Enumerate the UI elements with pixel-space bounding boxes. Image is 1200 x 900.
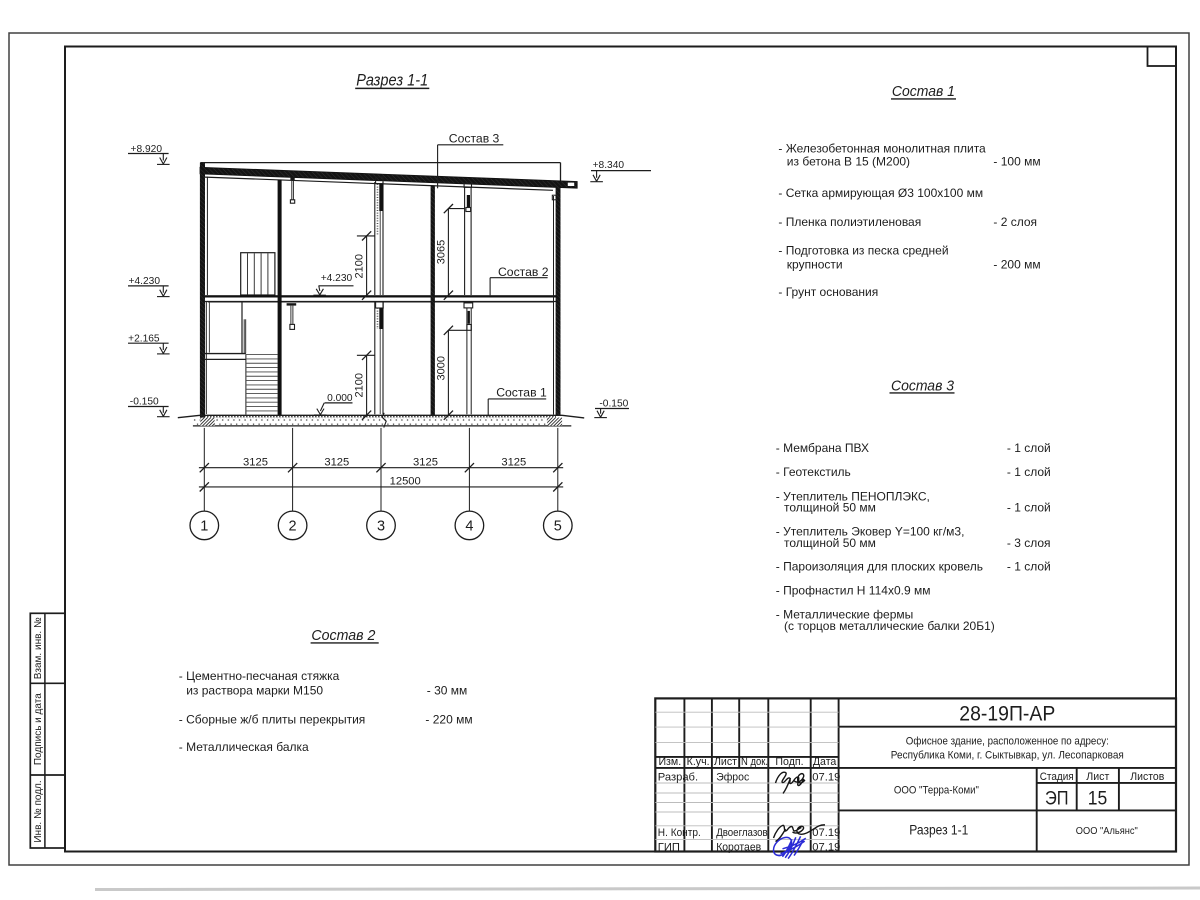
svg-text:+8.340: +8.340 [593,160,625,171]
svg-text:из раствора марки М150: из раствора марки М150 [186,684,323,698]
svg-text:N док.: N док. [741,756,768,768]
svg-text:3125: 3125 [324,456,349,468]
svg-text:- 100 мм: - 100 мм [993,154,1040,168]
svg-text:Состав 1: Состав 1 [892,83,955,100]
svg-text:ООО "Терра-Коми": ООО "Терра-Коми" [894,785,979,797]
svg-text:Лист: Лист [1086,771,1109,783]
svg-text:толщиной 50 мм: толщиной 50 мм [784,501,876,515]
svg-text:2100: 2100 [354,373,366,397]
svg-text:Изм.: Изм. [658,756,681,768]
svg-text:- Цементно-песчаная стяжка: - Цементно-песчаная стяжка [179,669,340,683]
svg-text:- 200 мм: - 200 мм [993,257,1040,271]
svg-text:07.19: 07.19 [812,827,840,839]
svg-text:ООО "Альянс": ООО "Альянс" [1076,825,1138,837]
svg-text:- Пароизоляция для плоских кро: - Пароизоляция для плоских кровель [776,559,983,573]
svg-text:Офисное здание, расположенное: Офисное здание, расположенное по адресу: [906,735,1109,747]
svg-text:Двоеглазов: Двоеглазов [716,827,768,839]
svg-text:- Сборные ж/б плиты перекрытия: - Сборные ж/б плиты перекрытия [179,712,365,726]
svg-text:15: 15 [1088,788,1108,809]
svg-text:07.19: 07.19 [812,772,840,784]
svg-text:Разрез 1-1: Разрез 1-1 [909,823,968,839]
svg-text:Лист: Лист [714,756,737,768]
svg-text:Стадия: Стадия [1040,771,1074,783]
svg-text:(с торцов металлические балки: (с торцов металлические балки 20Б1) [784,619,995,633]
svg-text:- Подготовка из песка средней: - Подготовка из песка средней [778,244,948,258]
svg-text:- 3 слоя: - 3 слоя [1007,536,1051,550]
svg-text:- 1 слой: - 1 слой [1007,465,1051,479]
svg-text:4: 4 [465,519,473,535]
svg-text:Состав 3: Состав 3 [891,377,955,394]
svg-text:0.000: 0.000 [327,393,353,404]
svg-text:- Сетка армирующая Ø3 100х100: - Сетка армирующая Ø3 100х100 мм [778,186,983,200]
svg-text:- 30 мм: - 30 мм [427,684,468,698]
svg-text:- 1 слой: - 1 слой [1007,559,1051,573]
svg-text:Подпись и дата: Подпись и дата [33,693,44,765]
svg-text:Инв. № подл.: Инв. № подл. [33,780,44,842]
svg-text:Разрез 1-1: Разрез 1-1 [356,70,428,89]
svg-text:Коротаев: Коротаев [716,841,761,853]
svg-text:Состав 3: Состав 3 [449,132,500,146]
svg-text:из бетона В 15 (М200): из бетона В 15 (М200) [787,154,910,168]
svg-text:3125: 3125 [501,456,526,468]
svg-text:2100: 2100 [354,254,366,278]
svg-text:толщиной 50 мм: толщиной 50 мм [784,536,876,550]
svg-text:- Пленка полиэтиленовая: - Пленка полиэтиленовая [778,215,921,229]
svg-text:Разраб.: Разраб. [658,772,698,784]
svg-text:ГИП: ГИП [658,841,680,853]
svg-text:Подп.: Подп. [775,756,803,768]
svg-text:3125: 3125 [243,456,268,468]
svg-text:Республика Коми, г. Сыктывкар,: Республика Коми, г. Сыктывкар, ул. Лесоп… [891,749,1124,761]
svg-text:+4.230: +4.230 [321,273,353,284]
svg-text:ЭП: ЭП [1045,788,1069,809]
svg-text:28-19П-АР: 28-19П-АР [959,702,1055,726]
svg-text:Состав 1: Состав 1 [496,386,547,400]
svg-text:5: 5 [554,519,562,535]
svg-text:- 2 слоя: - 2 слоя [993,215,1037,229]
svg-text:Дата: Дата [813,756,837,768]
svg-text:3065: 3065 [435,240,447,264]
svg-text:крупности: крупности [787,257,843,271]
svg-text:12500: 12500 [390,476,421,488]
svg-text:- 1 слой: - 1 слой [1007,441,1051,455]
svg-text:Листов: Листов [1130,771,1164,783]
svg-text:3125: 3125 [413,456,438,468]
svg-text:- Грунт основания: - Грунт основания [778,285,878,299]
svg-text:Состав 2: Состав 2 [498,265,549,279]
svg-text:- Железобетонная монолитная п: - Железобетонная монолитная плита [778,141,986,155]
svg-text:3000: 3000 [435,356,447,380]
svg-text:Взам. инв. №: Взам. инв. № [33,617,44,679]
svg-text:- Профнастил Н 114х0.9 мм: - Профнастил Н 114х0.9 мм [776,584,931,598]
svg-text:1: 1 [200,519,208,535]
svg-text:-0.150: -0.150 [599,398,628,409]
svg-text:- 1 слой: - 1 слой [1007,501,1051,515]
svg-text:07.19: 07.19 [812,841,840,853]
svg-text:- Металлическая балка: - Металлическая балка [179,740,309,754]
svg-text:3: 3 [377,519,385,535]
svg-text:- Геотекстиль: - Геотекстиль [776,465,851,479]
svg-text:К.уч.: К.уч. [687,756,710,768]
svg-text:2: 2 [289,519,297,535]
svg-text:- Мембрана ПВХ: - Мембрана ПВХ [776,441,869,455]
svg-text:Состав 2: Состав 2 [311,627,376,644]
svg-text:- 220 мм: - 220 мм [425,712,472,726]
svg-text:Н. Контр.: Н. Контр. [658,827,701,839]
svg-text:Эфрос: Эфрос [716,772,749,784]
